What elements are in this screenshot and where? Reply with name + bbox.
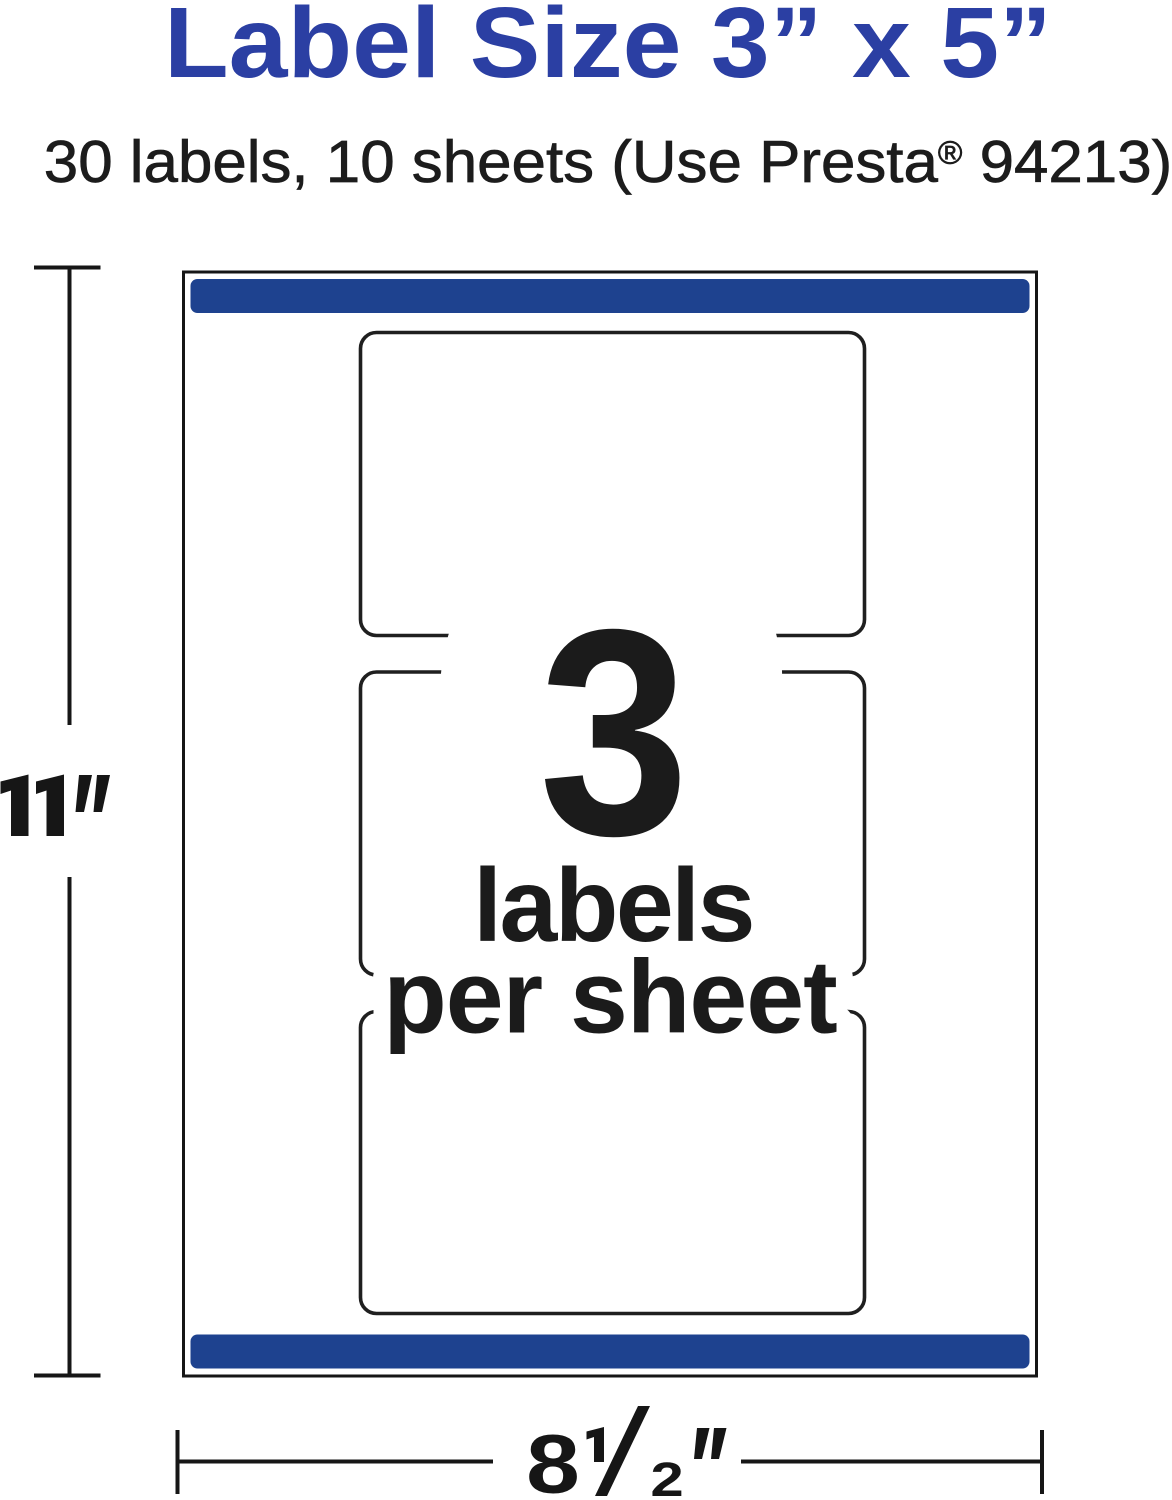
svg-text:Label Size 3” x 5”: Label Size 3” x 5” xyxy=(164,0,1052,98)
svg-text:8: 8 xyxy=(526,1417,580,1500)
svg-text:2: 2 xyxy=(650,1453,683,1500)
svg-text:30 labels, 10 sheets (Use Pres: 30 labels, 10 sheets (Use Presta® 94213) xyxy=(44,128,1172,195)
svg-text:per sheet: per sheet xyxy=(383,940,837,1056)
